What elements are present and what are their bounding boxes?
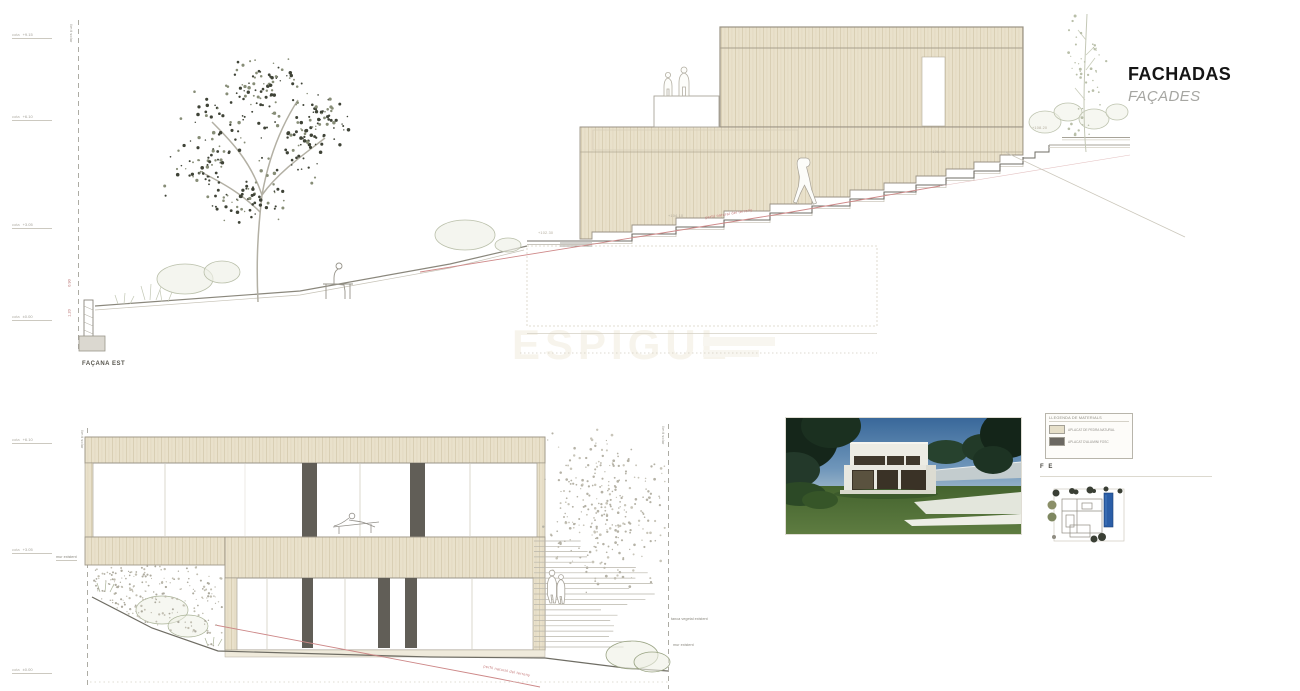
bottom-elevation-graphics [85, 424, 670, 689]
dark-mullion [378, 578, 390, 648]
level-marker: cota+6.10 [12, 437, 52, 444]
render-house [844, 442, 936, 493]
legend-swatch [1049, 437, 1065, 446]
render-terrace [840, 490, 936, 494]
tall-tree [1067, 14, 1107, 152]
level-label: +108.20 [1032, 126, 1047, 130]
top-elevation-graphics [79, 14, 1186, 353]
lower-glass-floor [225, 578, 545, 657]
render-image [785, 417, 1022, 535]
boundary-label: límit solar [661, 426, 665, 445]
legend-item: APLACAT D'ALUMINI FOSC [1049, 437, 1129, 446]
wall-annotation: mur existent [56, 555, 77, 561]
boundary-label: límit solar [80, 430, 84, 449]
roof-terrace-people [654, 67, 719, 127]
page-subtitle: FAÇADES [1128, 88, 1201, 105]
standing-people [548, 570, 565, 603]
page-title: FACHADAS [1128, 64, 1231, 85]
person-couple [664, 67, 689, 96]
legend-item: APLACAT DE PEDRA NATURAL [1049, 425, 1129, 434]
plan-pool [1104, 493, 1113, 527]
annotation: tanca vegetal existent [671, 617, 708, 621]
plan-tree-olive [1048, 501, 1057, 510]
bushes [157, 220, 521, 294]
plan-tree-olive [1048, 513, 1057, 522]
annotation: mur existent [673, 643, 694, 647]
wall-dimension: 0.90 [68, 279, 72, 286]
divider-line [1040, 476, 1212, 477]
upper-glass-floor [85, 463, 545, 537]
dark-mullion [410, 463, 425, 537]
plan-house [1062, 499, 1102, 537]
level-label: +106.40 [930, 150, 945, 154]
level-marker: cota+3.05 [12, 222, 52, 229]
legend-swatch [1049, 425, 1065, 434]
dark-mullion [302, 463, 317, 537]
wall-dimension: 1.20 [68, 309, 72, 316]
level-marker: cota+9.15 [12, 32, 52, 39]
dark-mullion [405, 578, 417, 648]
level-label: +102.30 [538, 231, 553, 235]
dark-mullion [302, 578, 313, 648]
sheet-code: F E [1040, 464, 1054, 470]
retaining-wall [79, 300, 105, 351]
level-marker: cota+6.10 [12, 114, 52, 121]
floor-band [225, 537, 545, 578]
window-slot [922, 57, 945, 126]
upper-volume [720, 27, 1023, 127]
level-marker: cota±0.00 [12, 667, 52, 674]
level-label: +104.10 [668, 214, 683, 218]
legend-title: LLEGENDA DE MATERIALS [1049, 416, 1129, 422]
level-marker: cota±0.00 [12, 314, 52, 321]
level-marker: cota+3.05 [12, 547, 52, 554]
boundary-label: límit solar [69, 24, 73, 43]
materials-legend: LLEGENDA DE MATERIALS APLACAT DE PEDRA N… [1045, 413, 1133, 459]
site-key-plan [1042, 481, 1134, 549]
sitting-person-bench [323, 263, 353, 299]
facade-name-label: FAÇANA EST [82, 361, 125, 367]
basement-outline [527, 246, 877, 326]
drawing-sheet: ESPIGUL [0, 0, 1300, 691]
elevation-linework [0, 0, 1300, 691]
roof-band [85, 437, 545, 463]
floor-band [85, 537, 225, 565]
render-graphic [786, 418, 1021, 534]
